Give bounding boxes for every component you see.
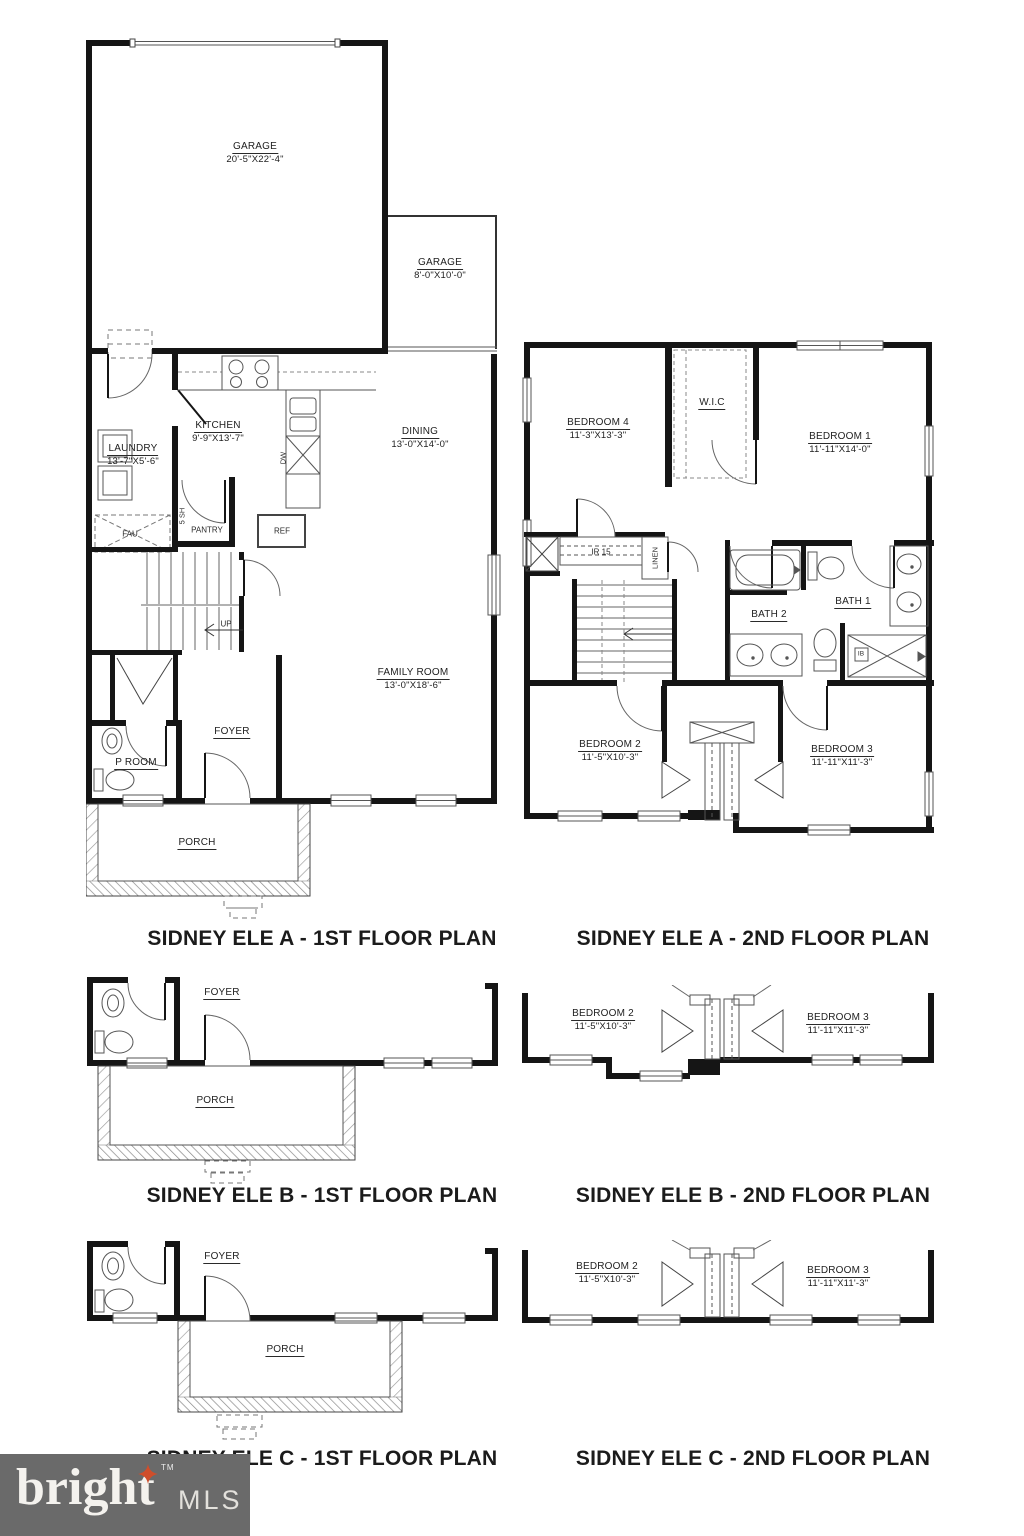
room-name: FOYER — [203, 986, 240, 1000]
hall-closets — [662, 985, 783, 1059]
ele-c-2nd-drawing — [522, 1240, 938, 1335]
room-dims: 11'-11"X11'-3" — [806, 1278, 870, 1290]
caption-ele-a-1st: SIDNEY ELE A - 1ST FLOOR PLAN — [86, 927, 558, 951]
room-name: BEDROOM 4 — [566, 416, 630, 430]
bath1-door — [852, 546, 894, 588]
bedroom4-door — [577, 499, 615, 537]
garage-small-walls — [388, 216, 497, 351]
room-dims: 9'-9"X13'-7" — [192, 433, 244, 445]
hall-door — [668, 542, 698, 572]
label-linen: LINEN — [651, 547, 660, 569]
porch-steps — [205, 1161, 250, 1183]
room-name: BEDROOM 2 — [578, 738, 642, 752]
room-name: P ROOM — [114, 756, 158, 770]
room-label-bedroom4: BEDROOM 4 11'-3"X13'-3" — [566, 416, 630, 442]
room-name: BEDROOM 3 — [806, 1011, 870, 1025]
ele-a-1st-drawing — [86, 38, 502, 922]
room-label-garage-small: GARAGE 8'-0"X10'-0" — [414, 256, 466, 282]
room-label-foyer: FOYER — [203, 1250, 240, 1264]
room-label-bedroom2: BEDROOM 2 11'-5"X10'-3" — [575, 1260, 639, 1286]
label-shower: IB — [858, 651, 864, 658]
room-label-foyer: FOYER — [203, 986, 240, 1000]
room-label-dining: DINING 13'-0"X14'-0" — [391, 425, 448, 451]
plan-ele-b-2nd: BEDROOM 2 11'-5"X10'-3" BEDROOM 3 11'-11… — [522, 985, 938, 1095]
room-name: PORCH — [195, 1094, 234, 1108]
ele-b-2nd-drawing — [522, 985, 938, 1095]
bath2-sinks — [730, 634, 802, 676]
bath1-sinks — [890, 546, 928, 626]
room-name: PORCH — [177, 836, 216, 850]
caption-ele-a-2nd: SIDNEY ELE A - 2ND FLOOR PLAN — [517, 927, 989, 951]
room-name: PORCH — [265, 1343, 304, 1357]
bedroom2-door — [617, 686, 662, 731]
plan-ele-c-1st: FOYER PORCH — [86, 1240, 502, 1455]
front-door — [205, 1015, 250, 1060]
bedroom3-door — [783, 686, 827, 730]
wic — [674, 342, 759, 484]
room-label-garage-main: GARAGE 20'-5"X22'-4" — [226, 140, 283, 166]
room-label-bedroom3: BEDROOM 3 11'-11"X11'-3" — [810, 743, 874, 769]
room-name: BEDROOM 2 — [571, 1007, 635, 1021]
room-name: BEDROOM 3 — [810, 743, 874, 757]
room-label-laundry: LAUNDRY 13'-7"X5'-6" — [107, 442, 159, 468]
caption-ele-c-2nd: SIDNEY ELE C - 2ND FLOOR PLAN — [517, 1447, 989, 1471]
hall-closets — [662, 1240, 783, 1317]
room-name: BEDROOM 1 — [808, 430, 872, 444]
porch-steps — [224, 896, 262, 918]
foyer-family-wall — [276, 655, 282, 798]
bright-mls-logo: bright TM MLS — [0, 1454, 250, 1536]
right-wall-window — [488, 555, 500, 615]
room-dims: 11'-3"X13'-3" — [566, 430, 630, 442]
room-name: FOYER — [203, 1250, 240, 1264]
room-dims: 8'-0"X10'-0" — [414, 270, 466, 282]
room-name: GARAGE — [417, 256, 463, 270]
room-dims: 13'-7"X5'-6" — [107, 456, 159, 468]
room-dims: 11'-5"X10'-3" — [575, 1274, 639, 1286]
logo-mls-text: MLS — [178, 1487, 243, 1514]
room-label-wic: W.I.C — [698, 396, 725, 410]
powder-room — [87, 977, 180, 1066]
room-dims: 13'-0"X14'-0" — [391, 439, 448, 451]
room-name: DINING — [401, 425, 439, 439]
room-name: BEDROOM 2 — [575, 1260, 639, 1274]
garage-door-line — [130, 39, 340, 47]
star-icon — [138, 1464, 158, 1484]
laundry-kitchen-wall — [172, 354, 178, 477]
stairs — [572, 579, 677, 685]
front-door — [205, 1276, 250, 1321]
room-name: W.I.C — [698, 396, 725, 410]
room-dims: 13'-0"X18'-6" — [377, 680, 450, 692]
label-pantry: PANTRY — [191, 526, 223, 535]
front-wall — [87, 1248, 498, 1321]
label-stair-risers: IR 15 — [591, 548, 610, 557]
room-dims: 11'-5"X10'-3" — [571, 1021, 635, 1033]
room-label-bedroom3: BEDROOM 3 11'-11"X11'-3" — [806, 1264, 870, 1290]
room-label-porch: PORCH — [265, 1343, 304, 1357]
pantry-door — [182, 480, 225, 523]
plan-ele-c-2nd: BEDROOM 2 11'-5"X10'-3" BEDROOM 3 11'-11… — [522, 1240, 938, 1335]
room-name: KITCHEN — [194, 419, 241, 433]
room-label-bath1: BATH 1 — [834, 595, 871, 609]
room-name: LAUNDRY — [107, 442, 158, 456]
front-door — [205, 753, 250, 798]
room-name: FOYER — [213, 725, 250, 739]
stairs — [86, 547, 280, 655]
label-up: UP — [220, 620, 231, 629]
plan-ele-a-2nd: BEDROOM 4 11'-3"X13'-3" W.I.C BEDROOM 1 … — [522, 340, 938, 840]
room-label-p-room: P ROOM — [114, 756, 158, 770]
porch — [86, 804, 310, 896]
room-label-bedroom2: BEDROOM 2 11'-5"X10'-3" — [578, 738, 642, 764]
label-ref: REF — [274, 527, 290, 536]
porch-steps — [217, 1415, 262, 1439]
powder-room — [87, 1241, 180, 1321]
room-label-bedroom3: BEDROOM 3 11'-11"X11'-3" — [806, 1011, 870, 1037]
room-label-porch: PORCH — [195, 1094, 234, 1108]
room-dims: 11'-11"X11'-3" — [810, 757, 874, 769]
bathtub — [730, 550, 800, 590]
room-label-kitchen: KITCHEN 9'-9"X13'-7" — [192, 419, 244, 445]
foyer-closet — [110, 655, 178, 720]
room-dims: 20'-5"X22'-4" — [226, 154, 283, 166]
ele-b-1st-drawing — [86, 973, 502, 1188]
room-label-porch: PORCH — [177, 836, 216, 850]
label-5sh: 5 SH — [178, 508, 187, 525]
plan-ele-b-1st: FOYER PORCH — [86, 973, 502, 1188]
room-label-bedroom2: BEDROOM 2 11'-5"X10'-3" — [571, 1007, 635, 1033]
room-label-foyer: FOYER — [213, 725, 250, 739]
walls — [522, 993, 934, 1079]
room-name: GARAGE — [232, 140, 278, 154]
label-dw: DW — [279, 452, 288, 465]
logo-brand-text: bright — [16, 1462, 155, 1514]
porch — [178, 1321, 402, 1412]
caption-ele-b-2nd: SIDNEY ELE B - 2ND FLOOR PLAN — [517, 1184, 989, 1208]
house-top-wall — [86, 348, 382, 354]
label-fau: FAU — [122, 530, 138, 539]
caption-ele-b-1st: SIDNEY ELE B - 1ST FLOOR PLAN — [86, 1184, 558, 1208]
room-name: BATH 2 — [750, 608, 787, 622]
logo-trademark: TM — [161, 1463, 175, 1472]
garage-stoop — [108, 330, 152, 358]
room-dims: 11'-5"X10'-3" — [578, 752, 642, 764]
room-name: FAMILY ROOM — [377, 666, 450, 680]
room-label-bath2: BATH 2 — [750, 608, 787, 622]
ele-a-2nd-drawing — [522, 340, 938, 840]
porch — [98, 1066, 355, 1160]
room-dims: 11'-11"X11'-3" — [806, 1025, 870, 1037]
room-label-family-room: FAMILY ROOM 13'-0"X18'-6" — [377, 666, 450, 692]
front-wall — [87, 983, 498, 1066]
room-label-bedroom1: BEDROOM 1 11'-11"X14'-0" — [808, 430, 872, 456]
bath2-toilet — [814, 629, 836, 671]
plan-ele-a-1st: GARAGE 20'-5"X22'-4" GARAGE 8'-0"X10'-0"… — [86, 38, 502, 922]
room-name: BATH 1 — [834, 595, 871, 609]
bed4-wic-wall — [665, 342, 672, 487]
room-dims: 11'-11"X14'-0" — [808, 444, 872, 456]
hall-closets — [662, 722, 783, 820]
bath1-toilet — [808, 552, 844, 580]
floor-plan-sheet: GARAGE 20'-5"X22'-4" GARAGE 8'-0"X10'-0"… — [0, 0, 1024, 1536]
room-name: BEDROOM 3 — [806, 1264, 870, 1278]
garage-entry-door — [108, 354, 152, 398]
